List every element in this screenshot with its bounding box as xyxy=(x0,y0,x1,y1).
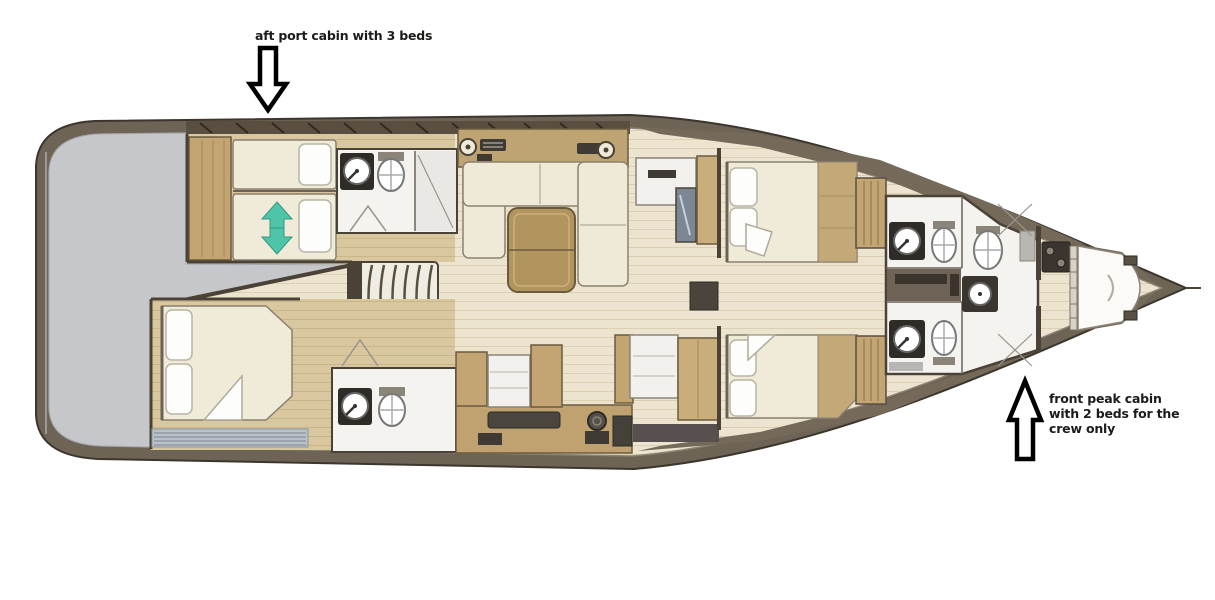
front-cabin-annotation-line1: front peak cabin xyxy=(1049,391,1162,406)
cleat xyxy=(1124,311,1137,320)
cabin-wall xyxy=(1036,306,1041,352)
cleat xyxy=(1124,256,1137,265)
step-block xyxy=(690,282,718,310)
arrow-up-icon xyxy=(1009,381,1041,459)
guest-cabin xyxy=(719,326,857,430)
vent-grill xyxy=(648,170,676,178)
locker xyxy=(1020,231,1035,261)
wardrobe xyxy=(697,156,719,244)
appliance xyxy=(585,431,609,444)
switch-panel xyxy=(477,154,492,161)
galley-cabinet xyxy=(531,345,562,407)
threshold xyxy=(633,424,719,442)
pillow xyxy=(166,310,192,360)
yacht-deck-plan-image: aft port cabin with 3 beds front peak ca… xyxy=(0,0,1215,600)
sink-counter xyxy=(488,412,560,428)
galley-cabinet xyxy=(456,352,487,406)
front-cabin-annotation-line2: with 2 beds for the xyxy=(1049,406,1179,421)
vip-cabin xyxy=(719,148,857,262)
port-bathroom xyxy=(337,149,457,233)
pillow xyxy=(166,364,192,414)
sofa-return xyxy=(578,162,628,286)
arrow-down-icon xyxy=(250,48,286,110)
bed-blanket xyxy=(818,162,857,262)
bath-mat xyxy=(889,362,923,371)
pillow xyxy=(730,380,756,416)
aft-cabin-annotation-text: aft port cabin with 3 beds xyxy=(255,28,432,43)
port-cabin-wardrobe xyxy=(189,137,231,260)
burner-icon xyxy=(588,412,606,430)
cabin-wall xyxy=(1036,226,1041,280)
center-cabinet xyxy=(887,269,961,301)
appliance xyxy=(613,416,632,446)
louver-band xyxy=(152,429,308,447)
oven-grill xyxy=(478,433,502,445)
vent-grill xyxy=(480,139,506,151)
deck-plan-canvas: aft port cabin with 3 beds front peak ca… xyxy=(0,0,1215,600)
front-cabin-annotation-line3: crew only xyxy=(1049,421,1115,436)
pillow xyxy=(730,168,757,206)
pillow xyxy=(299,200,331,252)
pillow xyxy=(299,144,331,185)
fridge xyxy=(488,355,530,407)
corridor-cabinet xyxy=(630,335,678,398)
toilet-tank xyxy=(933,357,955,365)
equipment-box xyxy=(1042,242,1070,272)
